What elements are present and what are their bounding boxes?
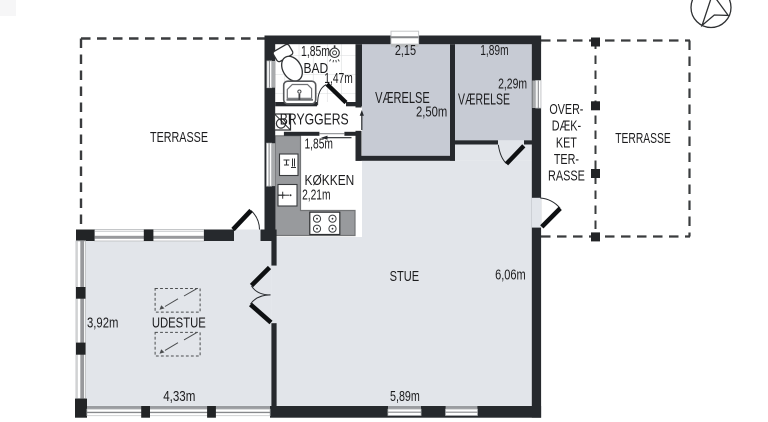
- svg-text:RASSE: RASSE: [548, 167, 585, 184]
- svg-text:1,85m: 1,85m: [301, 42, 330, 59]
- svg-text:KET: KET: [556, 134, 577, 151]
- svg-text:1,89m: 1,89m: [480, 41, 508, 59]
- svg-text:4,33m: 4,33m: [163, 388, 195, 405]
- svg-text:2,15: 2,15: [395, 41, 416, 58]
- svg-text:TERRASSE: TERRASSE: [150, 128, 208, 145]
- svg-text:OVER-: OVER-: [549, 100, 583, 117]
- svg-text:2,21m: 2,21m: [302, 185, 330, 203]
- svg-text:6,06m: 6,06m: [495, 266, 526, 283]
- svg-text:TER-: TER-: [554, 150, 579, 167]
- svg-text:BRYGGERS: BRYGGERS: [280, 111, 349, 129]
- svg-text:VÆRELSE: VÆRELSE: [458, 90, 510, 108]
- svg-text:DÆK-: DÆK-: [552, 117, 581, 134]
- svg-text:1,47m: 1,47m: [324, 69, 352, 87]
- svg-text:1,85m: 1,85m: [304, 134, 332, 152]
- svg-text:TERRASSE: TERRASSE: [615, 129, 671, 146]
- svg-text:2,29m: 2,29m: [498, 75, 527, 92]
- svg-text:UDESTUE: UDESTUE: [152, 314, 206, 331]
- svg-text:2,50m: 2,50m: [416, 103, 447, 120]
- svg-text:5,89m: 5,89m: [390, 387, 420, 404]
- svg-text:STUE: STUE: [390, 267, 420, 284]
- svg-text:3,92m: 3,92m: [87, 314, 118, 331]
